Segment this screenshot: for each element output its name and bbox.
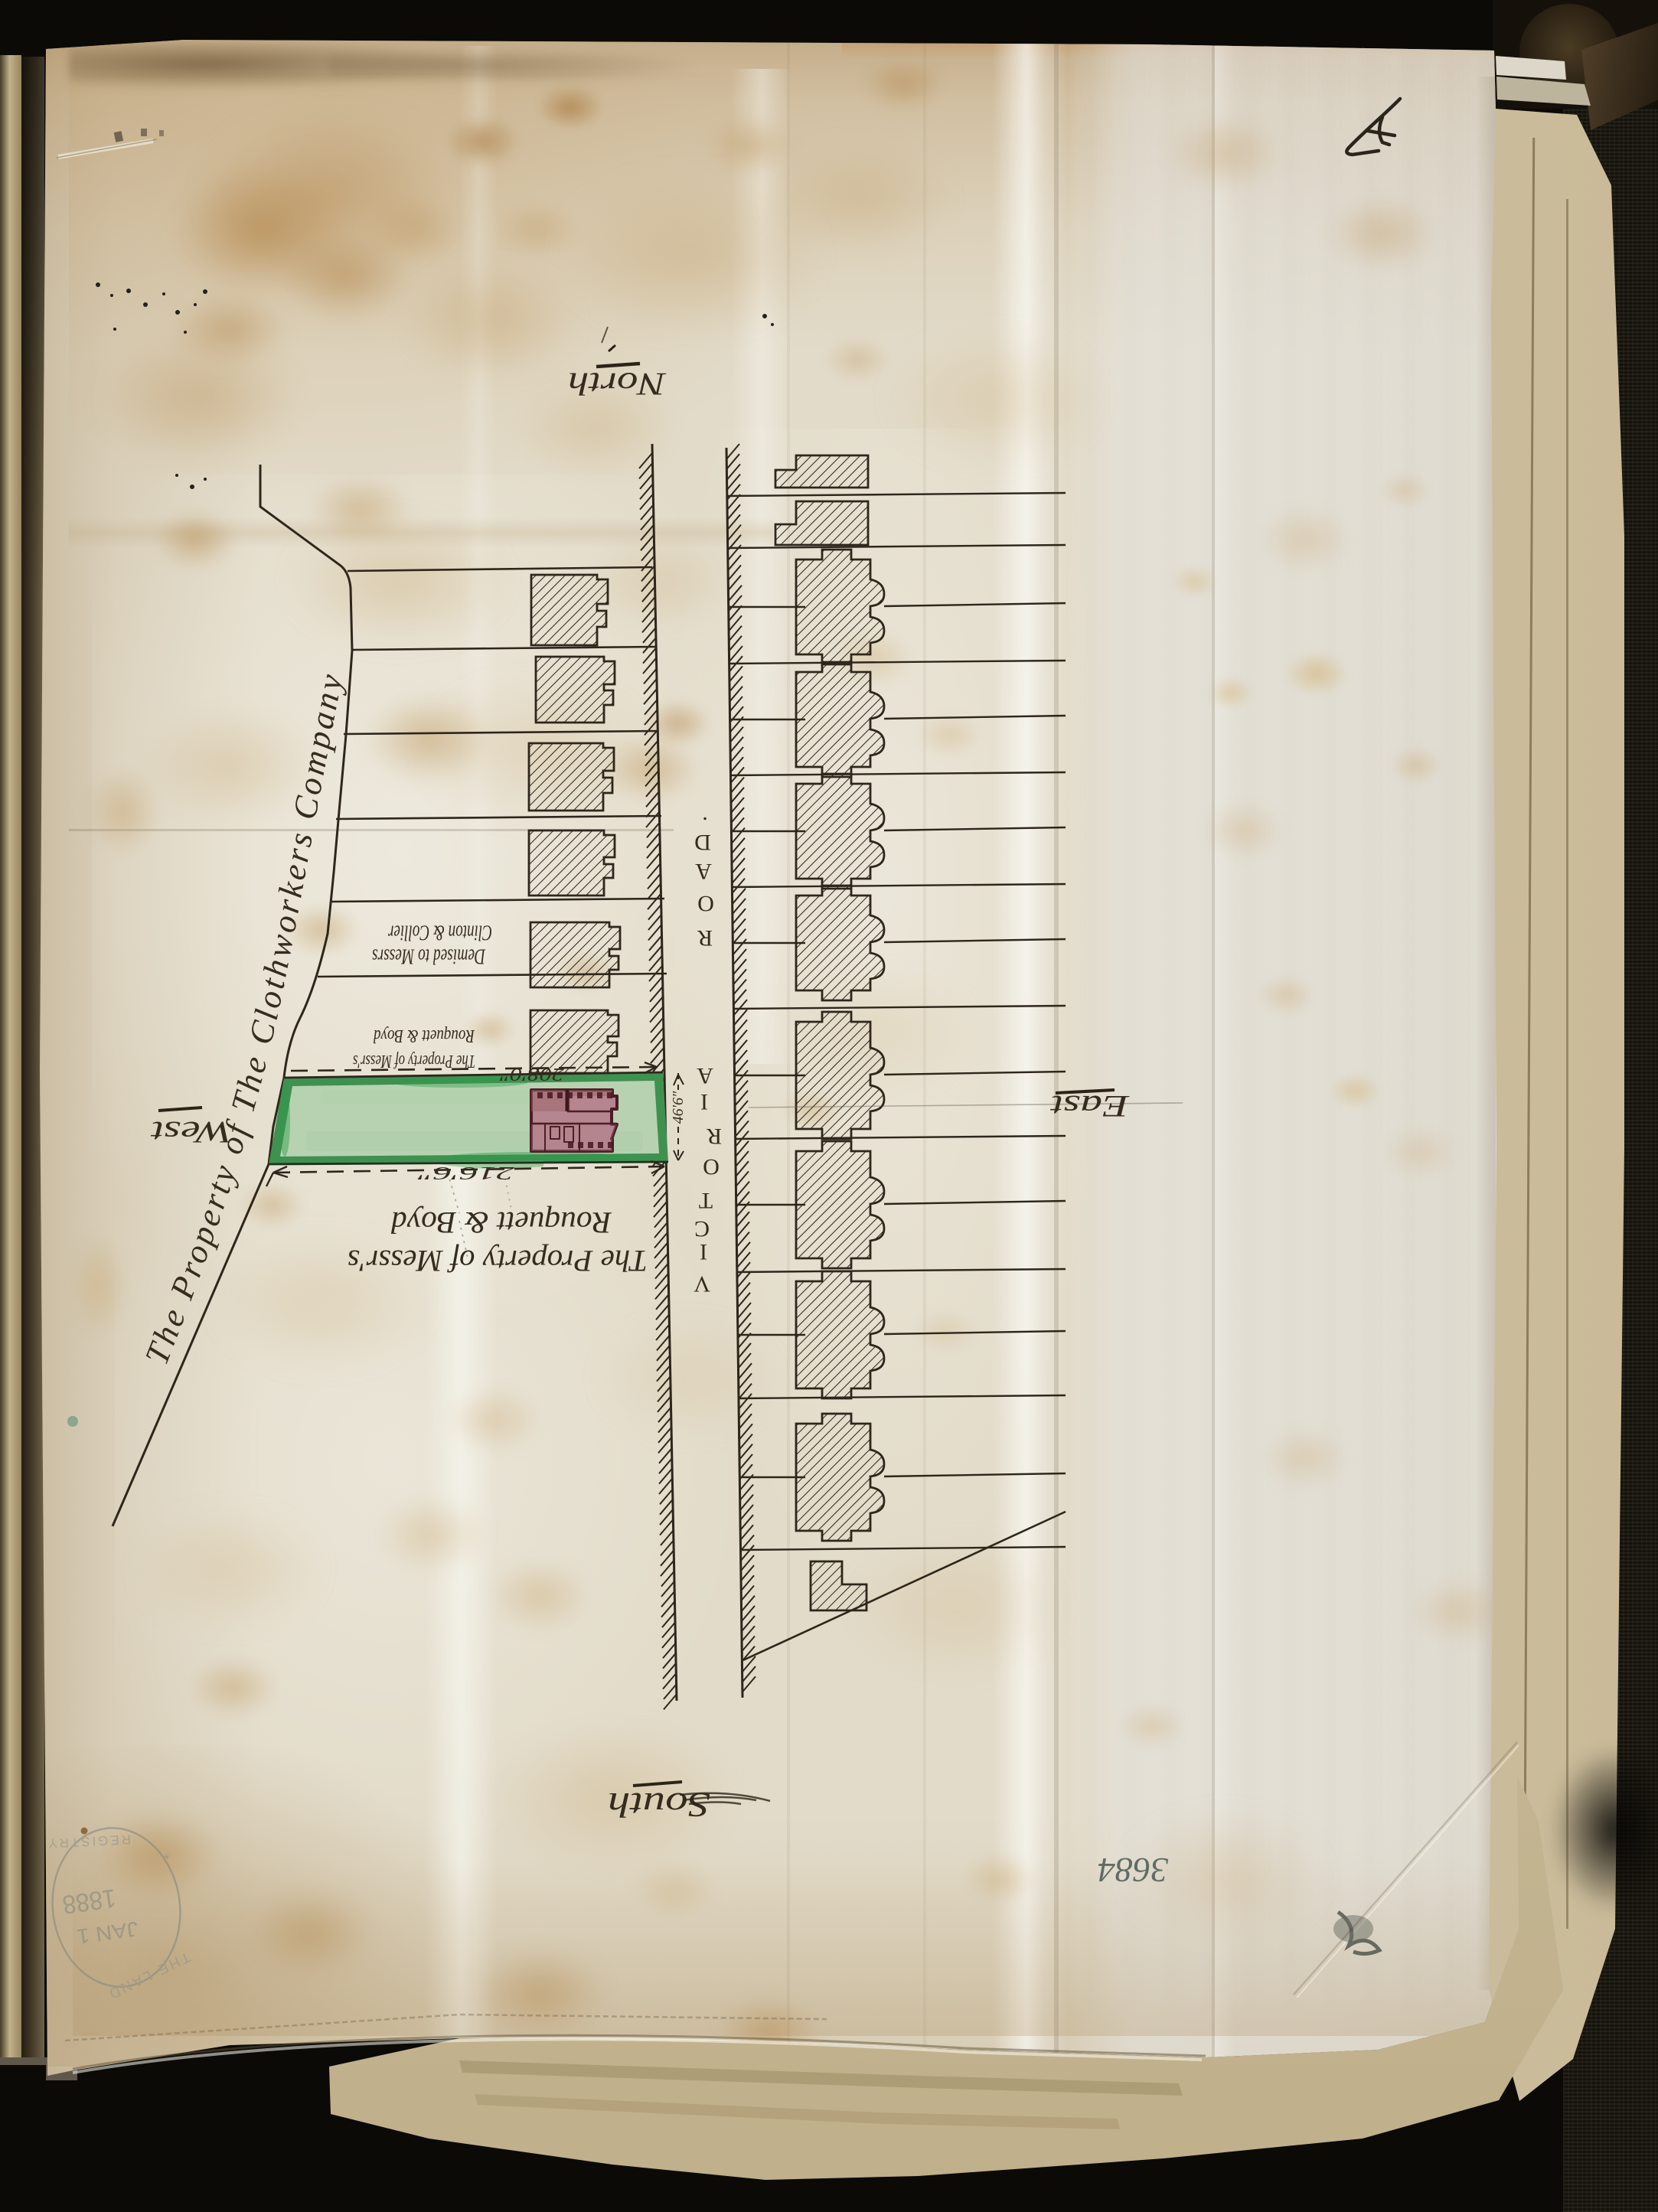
- svg-text:Rouquett & Boyd: Rouquett & Boyd: [390, 1206, 612, 1240]
- svg-text:.: .: [702, 812, 708, 837]
- svg-text:C: C: [694, 1216, 710, 1241]
- svg-text:The Property of Messr's: The Property of Messr's: [353, 1051, 475, 1071]
- svg-text:I: I: [700, 1239, 707, 1264]
- svg-text:Clinton & Collier: Clinton & Collier: [388, 920, 492, 944]
- svg-text:The Property of Messr's: The Property of Messr's: [348, 1244, 648, 1278]
- svg-text:A: A: [697, 1063, 713, 1088]
- svg-text:R: R: [707, 1124, 722, 1149]
- svg-text:V: V: [694, 1271, 710, 1297]
- svg-text:3684: 3684: [1098, 1851, 1169, 1890]
- svg-text:1888: 1888: [60, 1883, 118, 1919]
- svg-text:O: O: [703, 1154, 720, 1179]
- svg-text:South: South: [608, 1786, 710, 1825]
- svg-text:East: East: [1050, 1089, 1131, 1124]
- svg-text:THE LAND: THE LAND: [104, 1948, 192, 2002]
- svg-text:Demised to Messrs: Demised to Messrs: [372, 944, 486, 967]
- svg-text:I: I: [700, 1089, 708, 1114]
- svg-text:R: R: [697, 925, 713, 951]
- svg-text:O: O: [697, 891, 714, 916]
- svg-text:216′6″: 216′6″: [416, 1163, 514, 1183]
- svg-text:The Property of The Clothworke: The Property of The Clothworkers Company: [138, 670, 351, 1369]
- svg-text:Rouquett & Boyd: Rouquett & Boyd: [373, 1026, 475, 1046]
- svg-text:JAN 1: JAN 1: [76, 1917, 139, 1949]
- svg-text:A: A: [695, 859, 712, 884]
- svg-text:REGISTRY: REGISTRY: [46, 1832, 131, 1851]
- svg-text:T: T: [699, 1188, 713, 1213]
- svg-text:North: North: [568, 366, 667, 401]
- svg-text:208′0″: 208′0″: [499, 1064, 564, 1084]
- svg-text:46′6″: 46′6″: [670, 1091, 687, 1124]
